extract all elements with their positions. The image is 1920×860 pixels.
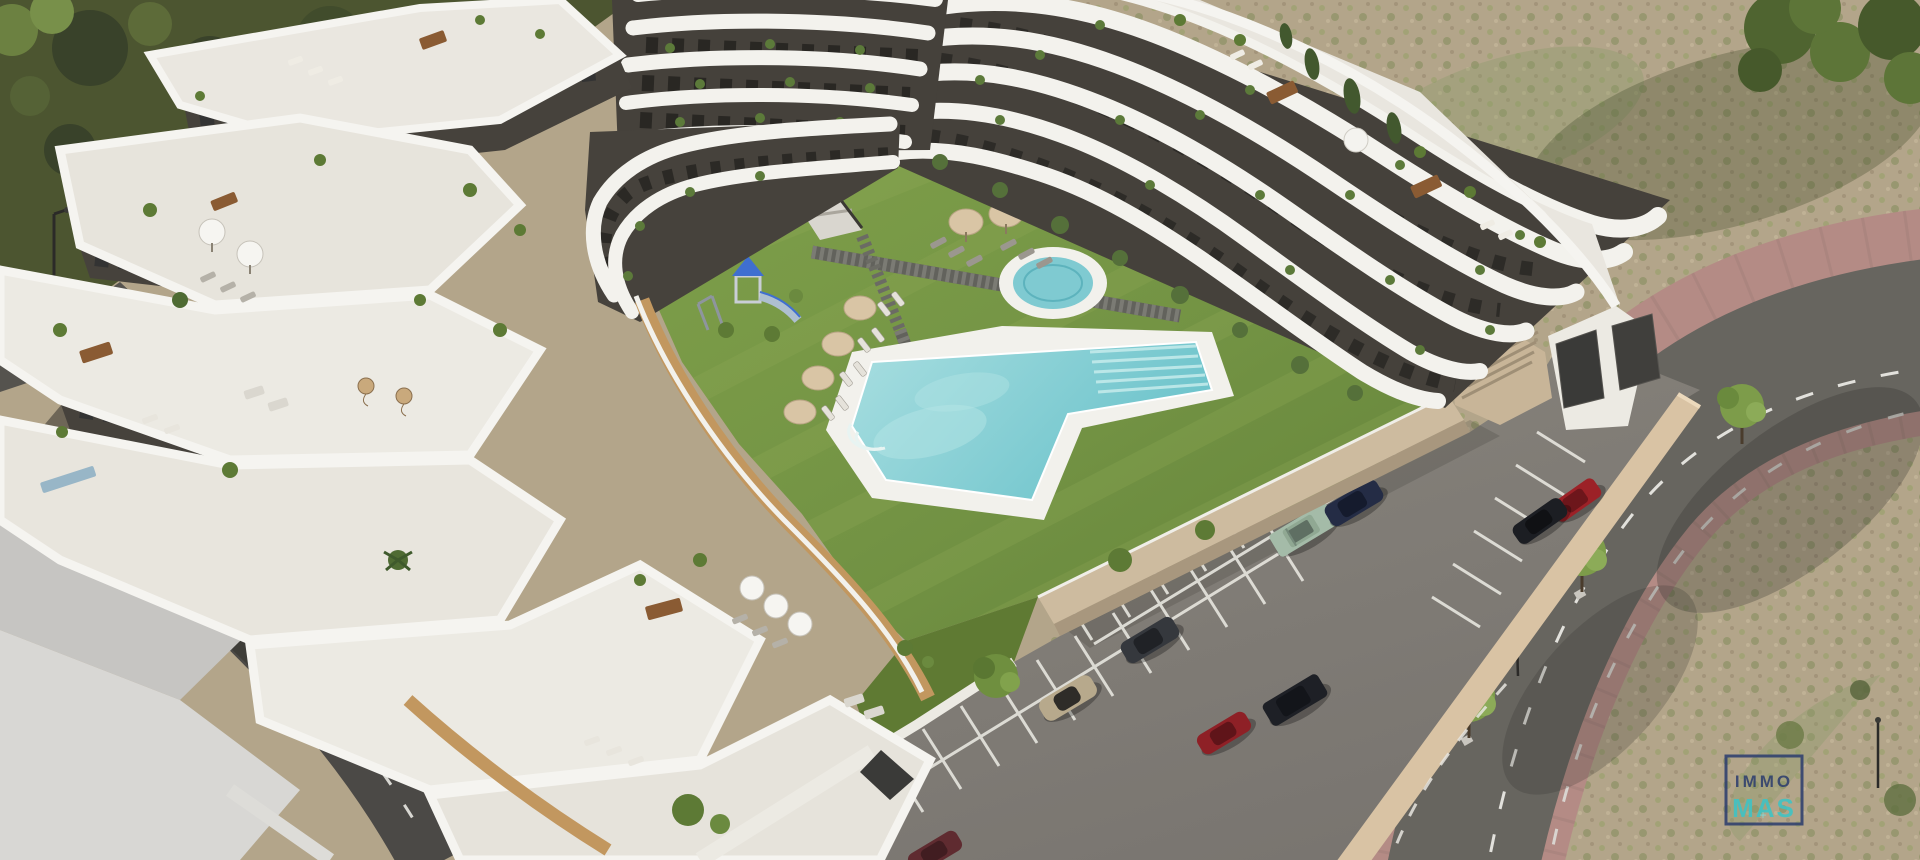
architectural-render: IMMO MAS + <box>0 0 1920 860</box>
render-canvas: IMMO MAS + <box>0 0 1920 860</box>
plus-icon: + <box>1759 808 1766 822</box>
jacuzzi <box>999 247 1107 319</box>
scrub-tuft <box>1776 721 1804 749</box>
garage-door <box>1556 330 1604 408</box>
garage-door <box>1612 314 1660 390</box>
scrub-tuft <box>1884 784 1916 816</box>
scrub-tuft <box>1850 680 1870 700</box>
watermark-text-immo: IMMO <box>1735 772 1793 791</box>
